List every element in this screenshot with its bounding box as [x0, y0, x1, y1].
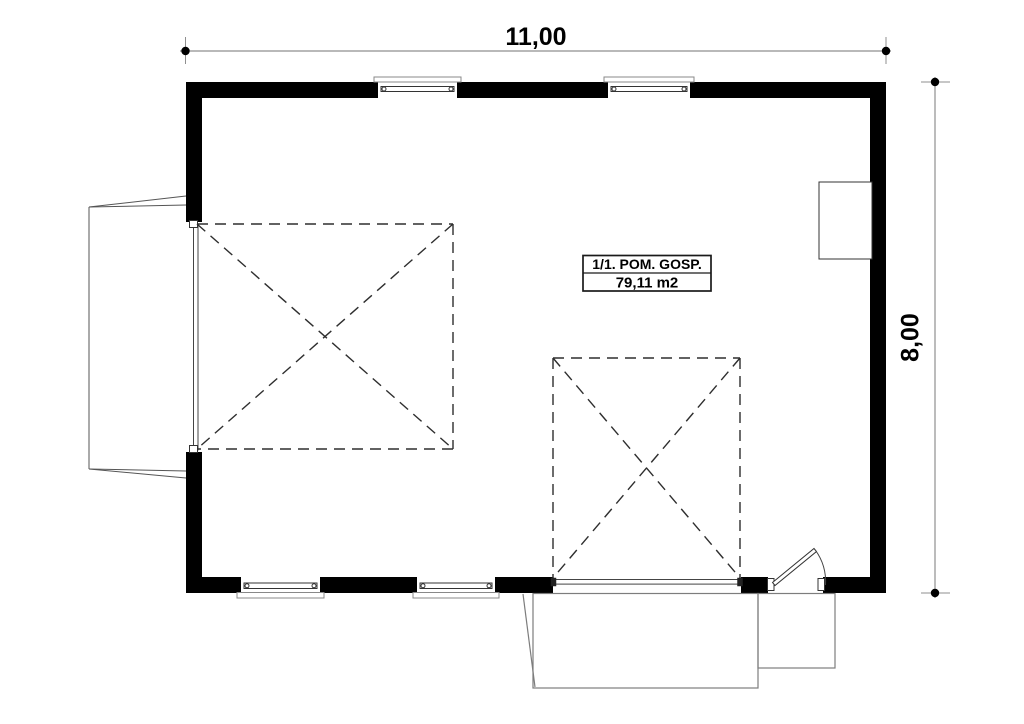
exterior-landing-large: [533, 594, 758, 689]
window-sill: [413, 593, 499, 599]
exterior-landing-small: [758, 594, 835, 669]
window-glazing: [611, 87, 687, 92]
wall-right: [870, 82, 886, 593]
window-frame-end: [487, 584, 491, 588]
dimension-right-label: 8,00: [897, 313, 925, 362]
gate-leaf-closed: [553, 580, 741, 585]
window-sill: [237, 593, 324, 599]
dimension-top-label: 11,00: [505, 23, 566, 51]
gate-jamb-block: [738, 578, 743, 586]
floor-plan-svg: 11,00 8,00 1/1. POM. GOSP. 79,11 m2: [0, 0, 1024, 724]
door-frame-block: [818, 579, 825, 591]
gate-swing-area-bottom: [553, 358, 740, 578]
gate-swing-area-left: [197, 224, 453, 449]
gate-leaf-closed: [194, 224, 199, 450]
wall-top: [186, 82, 886, 98]
window-frame-end: [682, 87, 686, 91]
window-sill: [374, 77, 461, 82]
dimension-right: 8,00: [897, 77, 951, 598]
window-frame-end: [312, 584, 316, 588]
floor-plan-canvas: 11,00 8,00 1/1. POM. GOSP. 79,11 m2: [0, 0, 1024, 724]
room-name-label: 1/1. POM. GOSP.: [592, 256, 701, 272]
gate-jamb-block: [190, 221, 198, 228]
door-frame-block: [768, 579, 775, 591]
window-glazing: [381, 87, 454, 92]
dimension-marker-dot: [931, 589, 939, 597]
window-frame-end: [449, 87, 453, 91]
dimension-marker-dot: [931, 78, 939, 86]
wall-niche: [819, 182, 872, 259]
garage-gate-left: [89, 196, 198, 478]
gate-jamb-block: [551, 578, 556, 586]
window-frame-end: [245, 584, 249, 588]
dimension-marker-dot: [181, 47, 189, 55]
room-area-label: 79,11 m2: [616, 275, 679, 292]
gate-open-panel: [89, 196, 186, 478]
window-frame-end: [612, 87, 616, 91]
walls: [186, 82, 886, 593]
exterior-landings: [523, 594, 835, 689]
dimension-top: 11,00: [180, 23, 891, 64]
window-glazing: [420, 583, 492, 589]
window-glazing: [244, 583, 317, 589]
window-frame-end: [421, 584, 425, 588]
window-sill: [604, 77, 694, 82]
gate-jamb-block: [190, 446, 198, 453]
window-frame-end: [382, 87, 386, 91]
room-label-box: 1/1. POM. GOSP. 79,11 m2: [583, 256, 711, 292]
dimension-marker-dot: [882, 47, 890, 55]
windows: [237, 77, 694, 598]
